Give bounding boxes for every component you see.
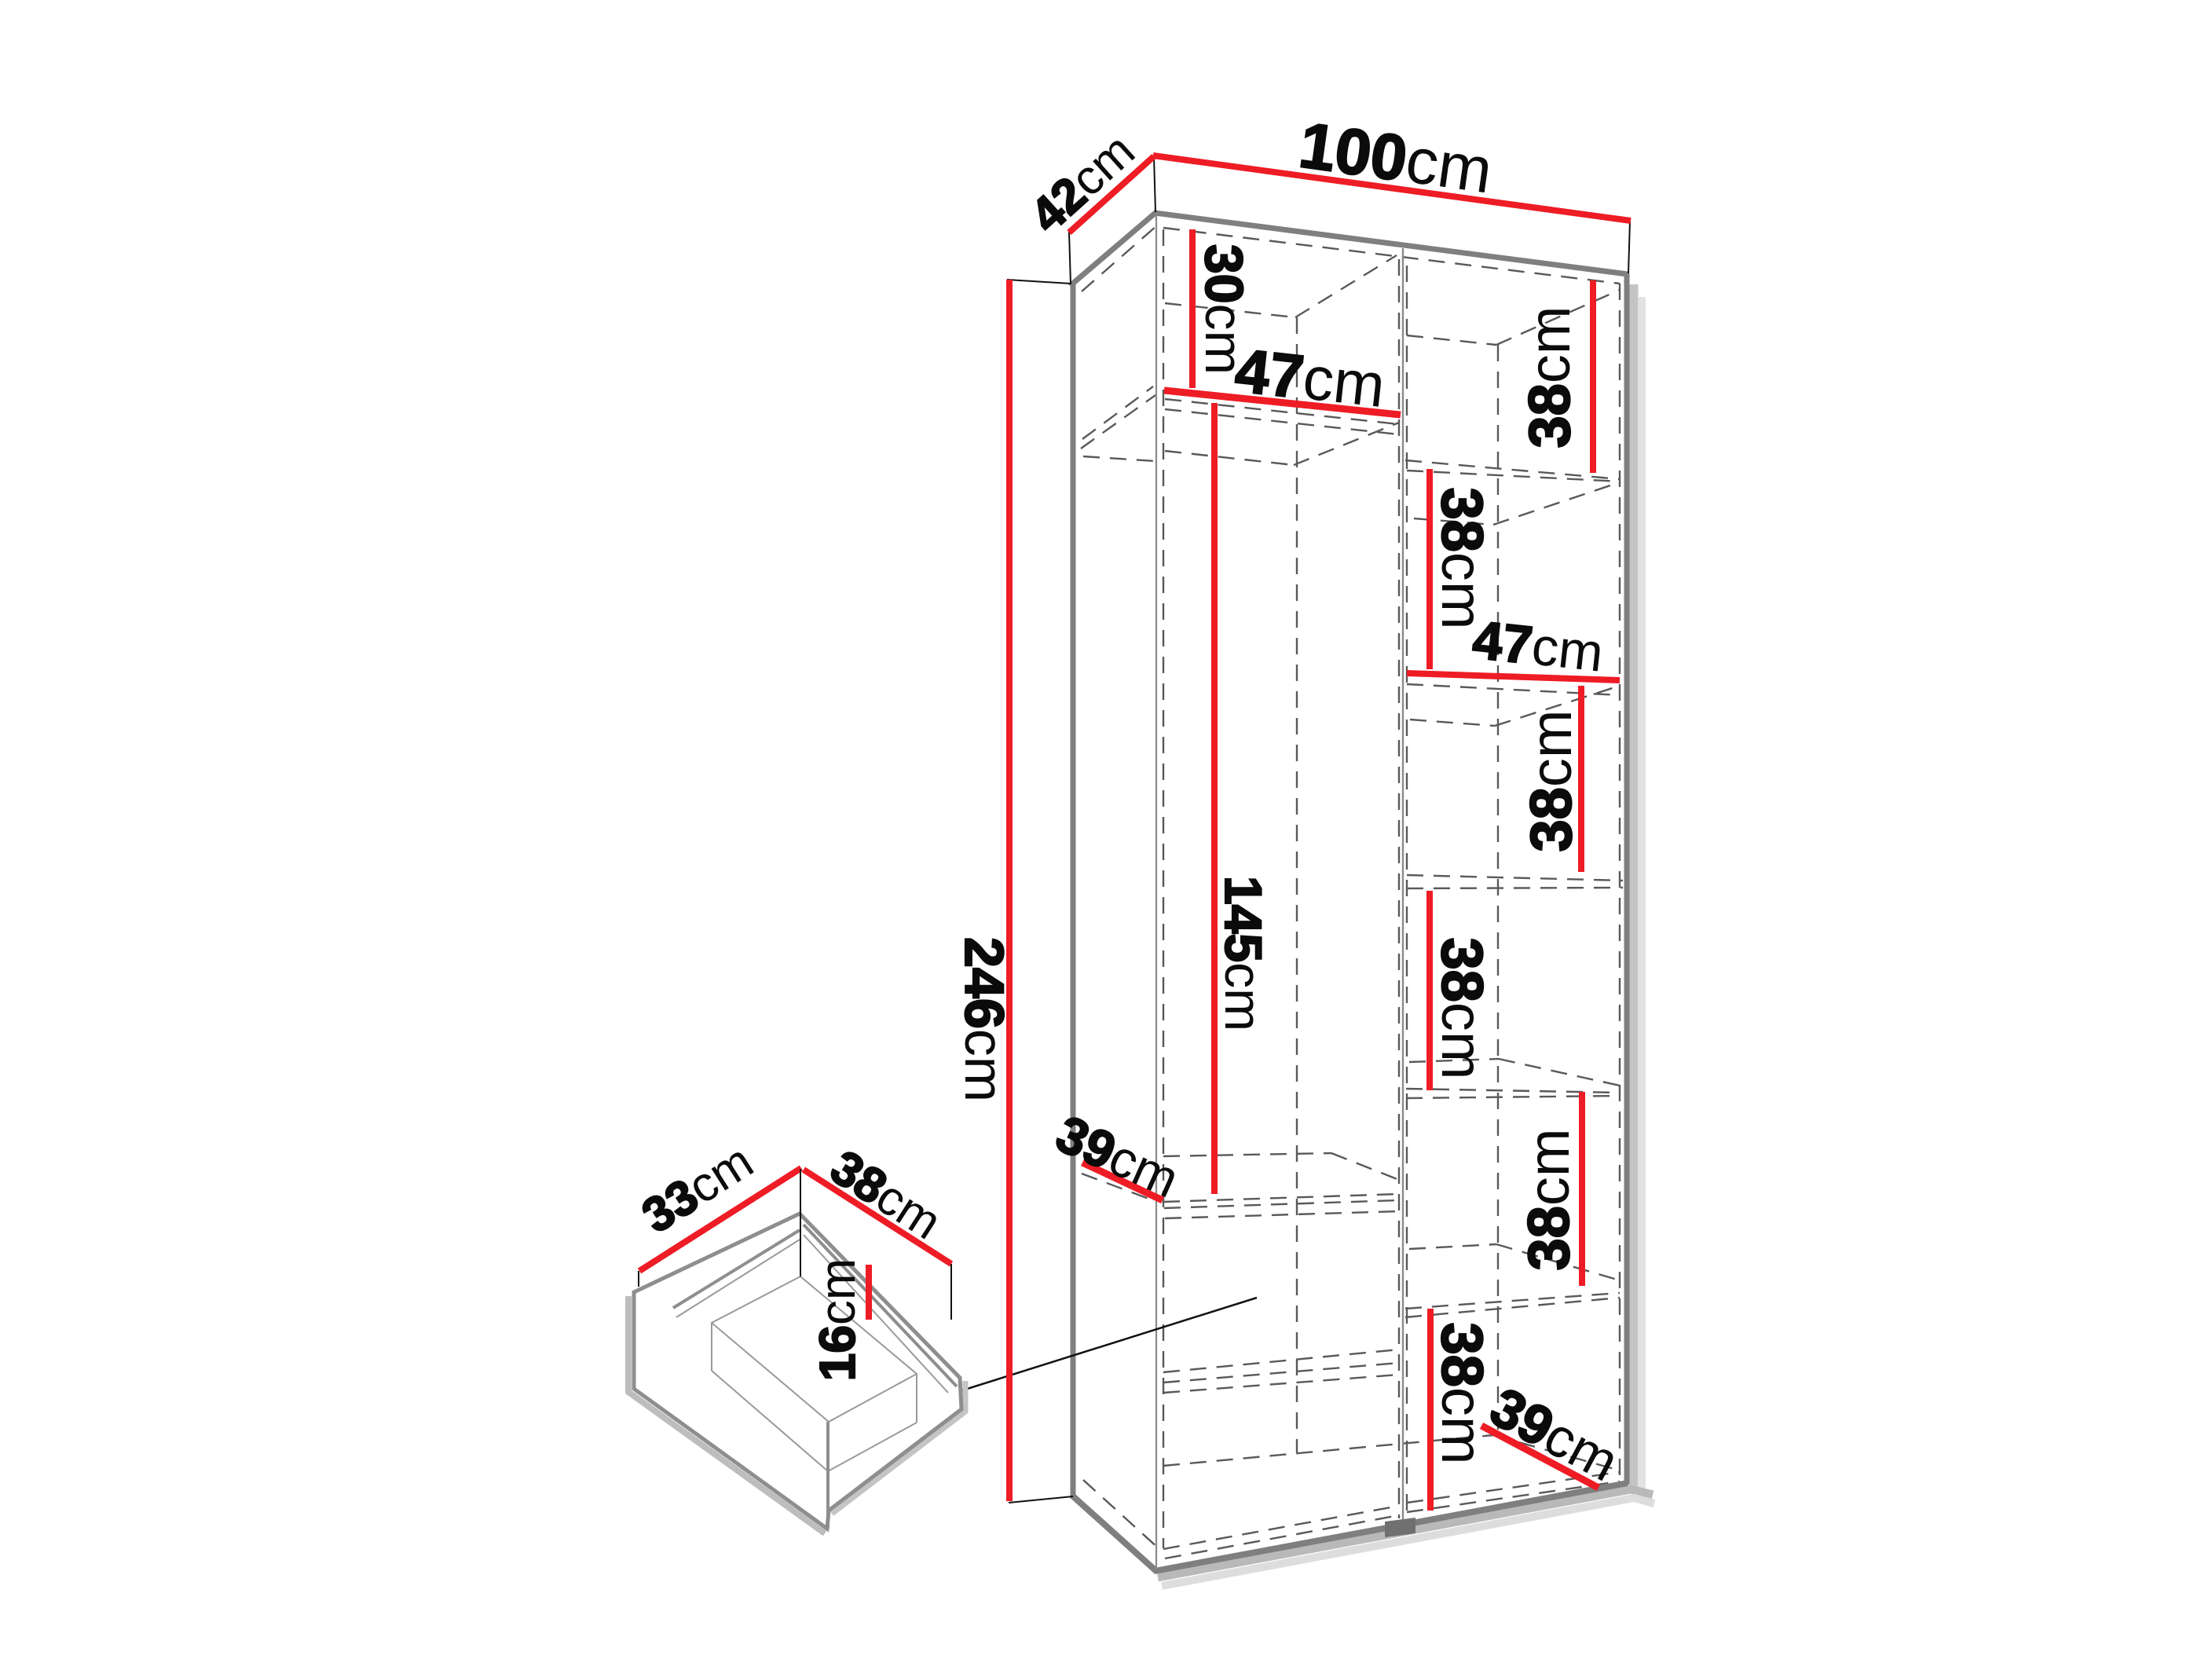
svg-text:38cm: 38cm <box>1430 938 1496 1080</box>
svg-text:145cm: 145cm <box>1214 876 1273 1031</box>
svg-text:38cm: 38cm <box>1430 488 1496 630</box>
svg-text:38cm: 38cm <box>1516 1129 1581 1271</box>
svg-text:38cm: 38cm <box>1518 710 1584 852</box>
svg-text:16cm: 16cm <box>809 1258 866 1382</box>
svg-text:38cm: 38cm <box>1430 1323 1496 1465</box>
svg-text:47cm: 47cm <box>1232 335 1388 420</box>
svg-text:39cm: 39cm <box>1481 1375 1628 1492</box>
svg-text:38cm: 38cm <box>1517 306 1582 449</box>
svg-text:39cm: 39cm <box>1048 1104 1188 1208</box>
svg-text:38cm: 38cm <box>822 1140 951 1250</box>
svg-text:100cm: 100cm <box>1295 109 1496 207</box>
svg-text:246cm: 246cm <box>954 937 1015 1102</box>
svg-text:33cm: 33cm <box>633 1133 763 1243</box>
